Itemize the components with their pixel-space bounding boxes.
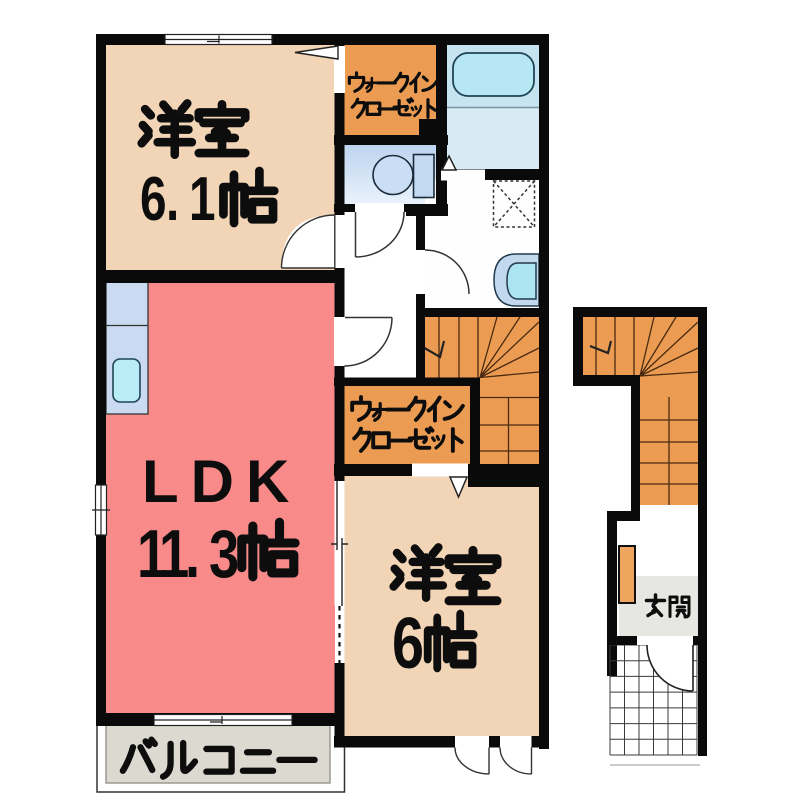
svg-text:6: 6 [392,603,424,684]
svg-text:.: . [185,516,200,592]
svg-text:.: . [166,164,179,233]
svg-text:3: 3 [209,516,239,592]
svg-text:1: 1 [189,164,216,233]
svg-text:6: 6 [140,164,167,233]
svg-text:LDK: LDK [142,448,301,515]
